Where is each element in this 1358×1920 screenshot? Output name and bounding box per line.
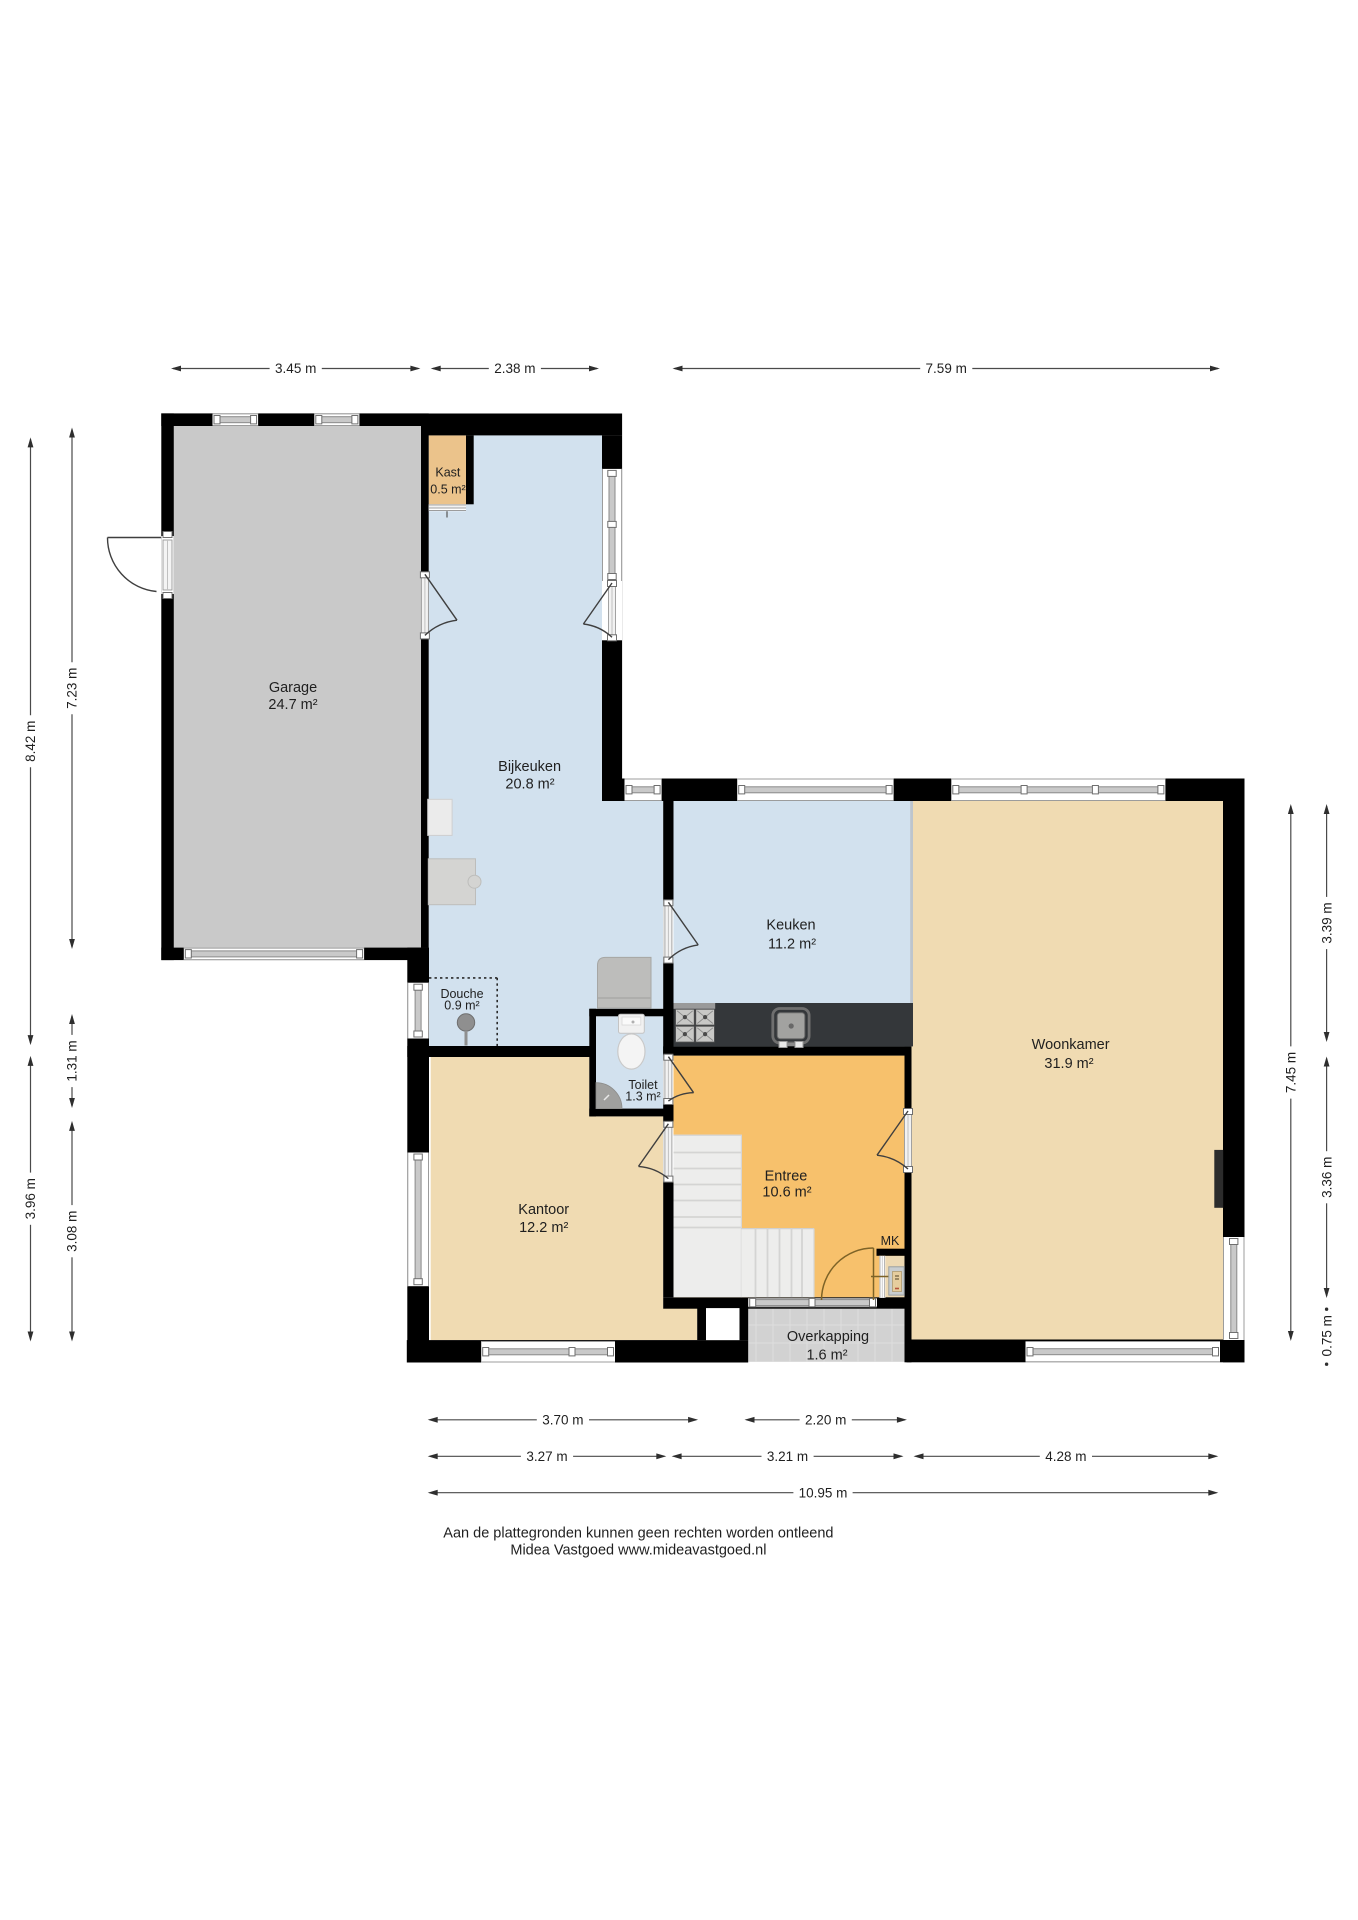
svg-text:10.95 m: 10.95 m [799, 1485, 848, 1500]
svg-text:Keuken: Keuken [766, 918, 815, 934]
svg-text:3.45 m: 3.45 m [275, 361, 316, 376]
svg-text:7.45 m: 7.45 m [1284, 1052, 1299, 1093]
svg-text:Bijkeuken: Bijkeuken [498, 759, 561, 775]
svg-text:3.70 m: 3.70 m [542, 1413, 583, 1428]
svg-text:20.8 m²: 20.8 m² [505, 777, 554, 793]
svg-text:4.28 m: 4.28 m [1045, 1449, 1086, 1464]
svg-text:2.38 m: 2.38 m [494, 361, 535, 376]
svg-text:3.27 m: 3.27 m [526, 1449, 567, 1464]
svg-text:Entree: Entree [765, 1169, 808, 1185]
svg-text:1.3 m²: 1.3 m² [625, 1090, 660, 1104]
svg-text:MK: MK [881, 1234, 900, 1248]
svg-text:Kast: Kast [435, 466, 461, 480]
svg-text:12.2 m²: 12.2 m² [519, 1220, 568, 1236]
svg-text:Aan de plattegronden kunnen ge: Aan de plattegronden kunnen geen rechten… [443, 1526, 833, 1542]
svg-text:7.59 m: 7.59 m [926, 361, 967, 376]
svg-text:3.39 m: 3.39 m [1319, 902, 1334, 943]
svg-text:10.6 m²: 10.6 m² [762, 1185, 811, 1201]
svg-text:Midea Vastgoed www.mideavastgo: Midea Vastgoed www.mideavastgoed.nl [510, 1543, 766, 1559]
svg-text:1.31 m: 1.31 m [65, 1040, 80, 1081]
svg-text:31.9 m²: 31.9 m² [1044, 1056, 1093, 1072]
svg-text:11.2 m²: 11.2 m² [768, 937, 816, 953]
svg-text:24.7 m²: 24.7 m² [268, 697, 317, 713]
svg-text:Kantoor: Kantoor [518, 1202, 569, 1218]
svg-text:Overkapping: Overkapping [787, 1329, 869, 1345]
svg-text:0.5 m²: 0.5 m² [430, 483, 465, 497]
svg-text:3.08 m: 3.08 m [65, 1211, 80, 1252]
svg-text:0.75 m: 0.75 m [1319, 1315, 1334, 1356]
svg-text:1.6 m²: 1.6 m² [806, 1348, 847, 1364]
svg-text:7.23 m: 7.23 m [65, 668, 80, 709]
svg-text:0.9 m²: 0.9 m² [444, 999, 479, 1013]
svg-text:3.36 m: 3.36 m [1319, 1157, 1334, 1198]
svg-text:Garage: Garage [269, 680, 317, 696]
svg-text:8.42 m: 8.42 m [23, 721, 38, 762]
svg-text:3.21 m: 3.21 m [767, 1449, 808, 1464]
svg-text:Woonkamer: Woonkamer [1032, 1037, 1110, 1053]
svg-text:2.20 m: 2.20 m [805, 1413, 846, 1428]
svg-text:3.96 m: 3.96 m [23, 1178, 38, 1219]
